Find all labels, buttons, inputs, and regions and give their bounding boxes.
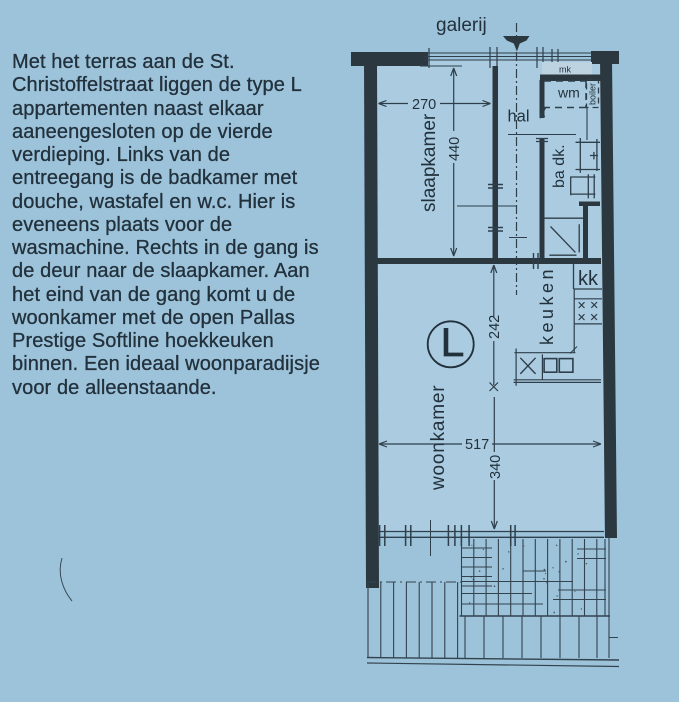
svg-text:440: 440	[447, 137, 463, 161]
svg-text:wm: wm	[557, 85, 580, 101]
svg-text:ba dk.: ba dk.	[551, 144, 568, 188]
svg-text:galerij: galerij	[436, 15, 487, 36]
svg-text:517: 517	[465, 437, 489, 453]
svg-text:340: 340	[488, 455, 504, 479]
svg-text:keuken: keuken	[537, 266, 557, 345]
svg-text:slaapkamer: slaapkamer	[419, 113, 440, 212]
svg-text:hal: hal	[508, 108, 530, 126]
svg-text:242: 242	[487, 315, 503, 339]
svg-text:kk: kk	[578, 268, 599, 290]
svg-text:270: 270	[412, 97, 436, 113]
svg-text:woonkamer: woonkamer	[428, 385, 449, 491]
svg-text:boiler: boiler	[588, 83, 598, 105]
svg-text:mk: mk	[559, 65, 571, 75]
